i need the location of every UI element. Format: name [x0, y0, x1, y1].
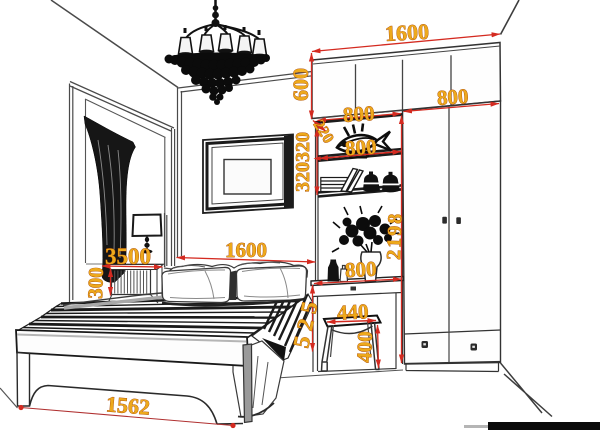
svg-text:800: 800	[436, 84, 469, 110]
svg-text:1562: 1562	[105, 391, 151, 419]
svg-text:800: 800	[342, 101, 375, 127]
svg-text:400: 400	[352, 331, 377, 363]
svg-text:800: 800	[344, 257, 377, 283]
svg-text:3500: 3500	[105, 244, 151, 269]
svg-text:2198: 2198	[383, 211, 407, 260]
svg-text:320320: 320320	[292, 132, 314, 192]
svg-text:300: 300	[83, 267, 108, 299]
svg-text:800: 800	[344, 134, 377, 160]
svg-text:1600: 1600	[225, 238, 267, 262]
svg-text:600: 600	[288, 68, 313, 101]
svg-text:1600: 1600	[384, 19, 429, 46]
svg-text:440: 440	[336, 299, 369, 325]
